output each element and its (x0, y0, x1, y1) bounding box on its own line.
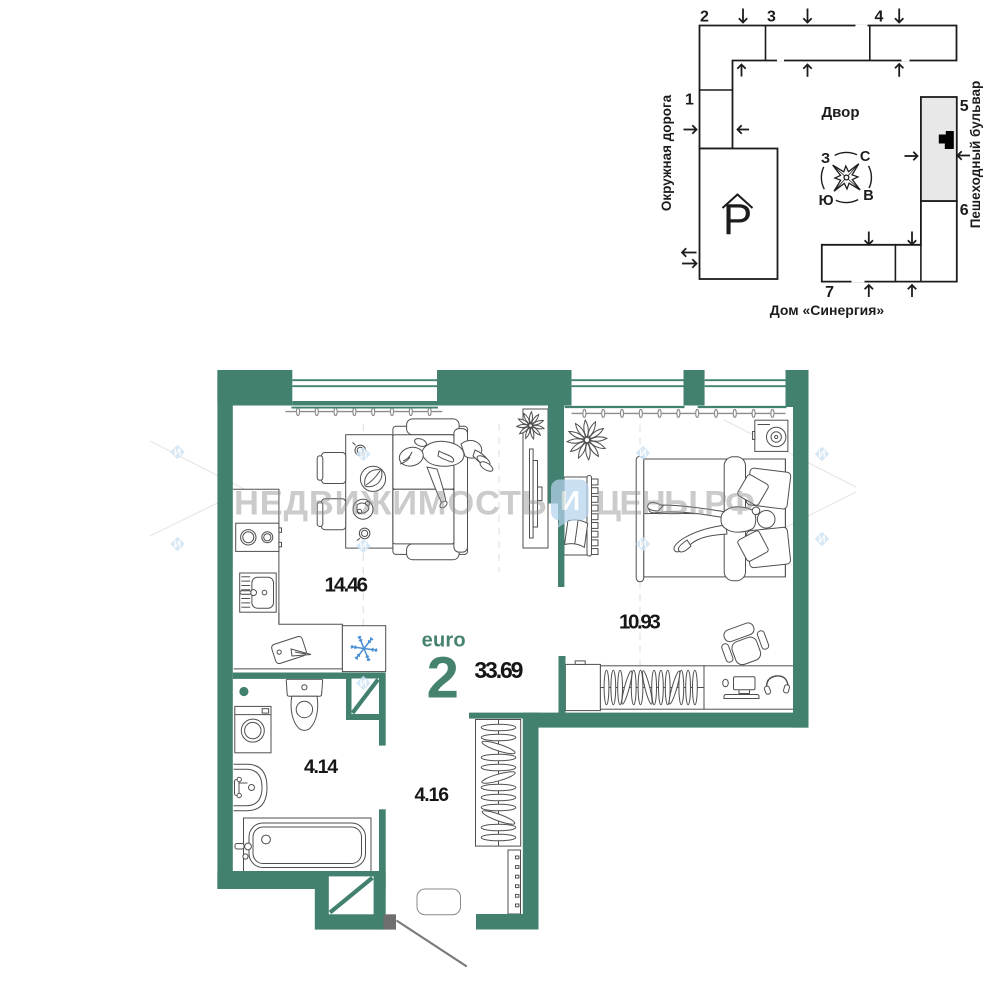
svg-text:14.46: 14.46 (325, 573, 369, 596)
svg-text:Пешеходный бульвар: Пешеходный бульвар (968, 81, 983, 229)
svg-text:1: 1 (685, 92, 694, 109)
svg-text:И: И (360, 449, 367, 460)
svg-text:ЦЕНЫ.РФ: ЦЕНЫ.РФ (596, 485, 756, 523)
svg-text:10.93: 10.93 (619, 611, 661, 634)
svg-text:7: 7 (825, 284, 834, 301)
svg-text:И: И (639, 448, 646, 459)
svg-text:Двор: Двор (821, 104, 859, 121)
svg-text:И: И (639, 539, 646, 550)
svg-text:И: И (360, 541, 367, 552)
svg-text:И: И (360, 678, 367, 689)
svg-text:Ю: Ю (819, 193, 834, 209)
svg-text:В: В (863, 188, 873, 204)
svg-text:И: И (174, 539, 181, 550)
svg-text:З: З (821, 151, 830, 167)
svg-text:2: 2 (700, 9, 709, 26)
svg-text:2: 2 (427, 646, 459, 711)
svg-text:Дом «Синергия»: Дом «Синергия» (770, 302, 885, 318)
svg-text:И: И (818, 534, 825, 545)
svg-text:Окружная дорога: Окружная дорога (659, 94, 674, 211)
svg-text:4.14: 4.14 (304, 756, 338, 778)
svg-text:НЕДВИЖИМОСТЬ: НЕДВИЖИМОСТЬ (234, 485, 548, 523)
svg-text:4: 4 (874, 9, 883, 26)
svg-text:33.69: 33.69 (474, 657, 523, 683)
svg-text:И: И (818, 449, 825, 460)
svg-text:4.16: 4.16 (415, 784, 450, 806)
svg-text:3: 3 (767, 9, 776, 26)
svg-text:И: И (560, 485, 580, 516)
svg-text:P: P (723, 195, 752, 244)
svg-text:С: С (860, 149, 871, 165)
svg-text:И: И (174, 447, 181, 458)
